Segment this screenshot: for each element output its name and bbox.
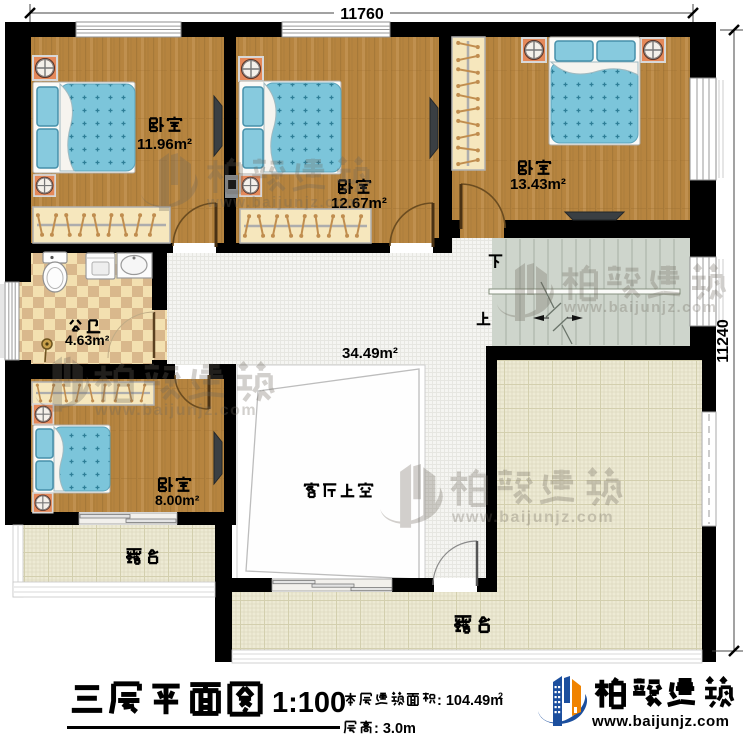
svg-text:1:100: 1:100 <box>272 687 346 719</box>
svg-text:34.49m²: 34.49m² <box>342 345 398 362</box>
svg-text:www.baijunjz.com: www.baijunjz.com <box>206 194 360 211</box>
svg-text:11240: 11240 <box>715 319 732 363</box>
svg-text:: 104.49m: : 104.49m <box>437 693 503 709</box>
svg-text:www.baijunjz.com: www.baijunjz.com <box>451 509 614 526</box>
svg-text:2: 2 <box>498 691 503 701</box>
svg-text:www.baijunjz.com: www.baijunjz.com <box>94 402 257 419</box>
svg-text:4.63m²: 4.63m² <box>65 332 110 348</box>
svg-text:13.43m²: 13.43m² <box>510 176 566 193</box>
svg-text:www.baijunjz.com: www.baijunjz.com <box>591 713 729 730</box>
svg-text:: 3.0m: : 3.0m <box>374 721 416 737</box>
svg-text:11.96m²: 11.96m² <box>137 136 192 153</box>
svg-text:8.00m²: 8.00m² <box>155 492 200 508</box>
svg-text:11760: 11760 <box>340 6 384 23</box>
svg-text:www.baijunjz.com: www.baijunjz.com <box>563 299 717 316</box>
